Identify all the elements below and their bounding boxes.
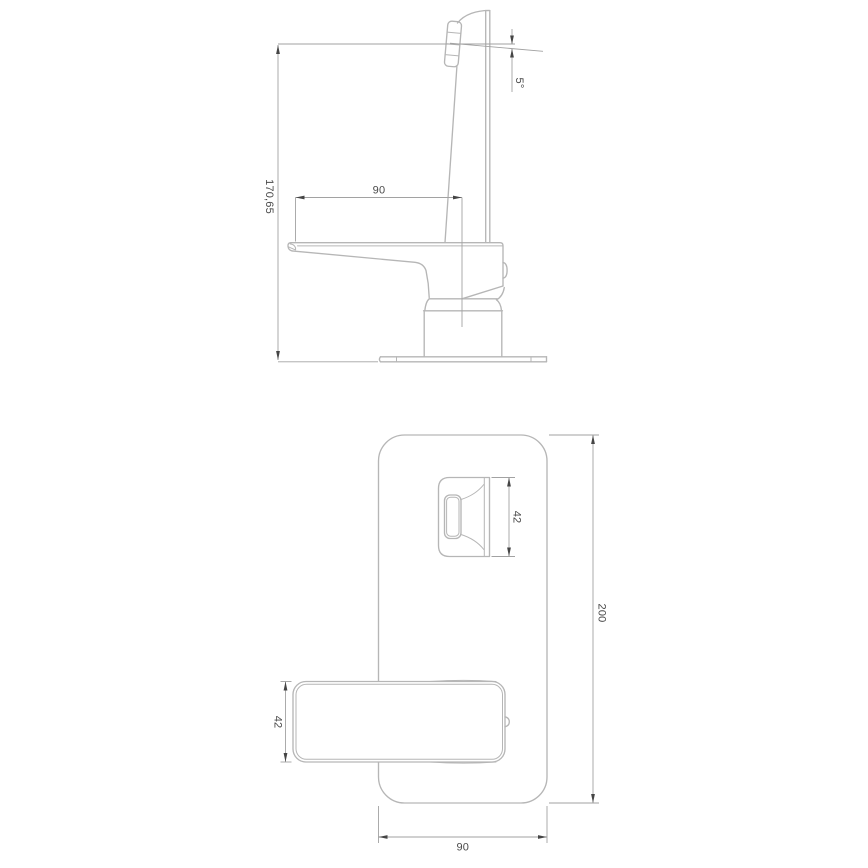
dim-handle-width-label: 42: [272, 716, 284, 729]
spout-plan: [439, 478, 490, 557]
arrowhead-left: [379, 835, 388, 839]
outlet-head-line-1: [447, 32, 461, 33]
plate-left-cap: [379, 357, 380, 362]
dim-angle: 5°: [450, 29, 543, 92]
body-bottom-right-arc: [497, 288, 505, 300]
base-plate-side: [379, 357, 546, 362]
base-column: [424, 299, 503, 357]
handle-top-edge: [291, 243, 503, 286]
spout-top-arc: [458, 11, 490, 24]
spout-riser: [445, 11, 490, 243]
dim-plate-width: 90: [379, 806, 548, 854]
dim-angle-label: 5°: [513, 78, 525, 89]
plan-view: 42 200 42 90: [272, 435, 608, 854]
arrowhead-down: [284, 753, 288, 762]
arrowhead-up: [591, 435, 595, 444]
body-bottom-diagonal: [462, 286, 503, 299]
handle-underside: [292, 251, 429, 298]
handle-outline: [293, 682, 505, 763]
side-view: 170,65 90 5°: [263, 11, 547, 362]
technical-drawing-page: 170,65 90 5°: [0, 0, 868, 868]
arrowhead-down: [591, 794, 595, 803]
dim-handle-width: 42: [272, 682, 292, 763]
dim-reach-label: 90: [373, 185, 386, 197]
handle-and-body: [288, 243, 507, 300]
faucet-dimension-drawing: 170,65 90 5°: [0, 0, 868, 868]
dim-plate-length-label: 200: [596, 604, 608, 623]
dim-reach: 90: [296, 185, 463, 328]
arrowhead-left: [296, 196, 305, 200]
arrowhead-down: [276, 351, 280, 360]
collar-left: [425, 299, 429, 311]
arrowhead-up: [276, 45, 280, 54]
outlet-head-line-3: [445, 55, 459, 56]
dim-spout-width-label: 42: [511, 511, 523, 524]
dim-plate-width-label: 90: [456, 842, 469, 854]
dim-height-label: 170,65: [263, 179, 275, 214]
spout-front-edge: [445, 67, 457, 243]
arrowhead-up-angle: [510, 49, 514, 58]
arrowhead-right: [538, 835, 547, 839]
collar-right: [497, 300, 502, 311]
arrowhead-up: [284, 682, 288, 691]
dim-height: 170,65: [263, 44, 515, 362]
handle-plan: [293, 680, 509, 763]
arrowhead-down-angle: [510, 36, 514, 45]
arrowhead-right: [453, 196, 462, 200]
dim-plate-length: 200: [549, 435, 608, 803]
